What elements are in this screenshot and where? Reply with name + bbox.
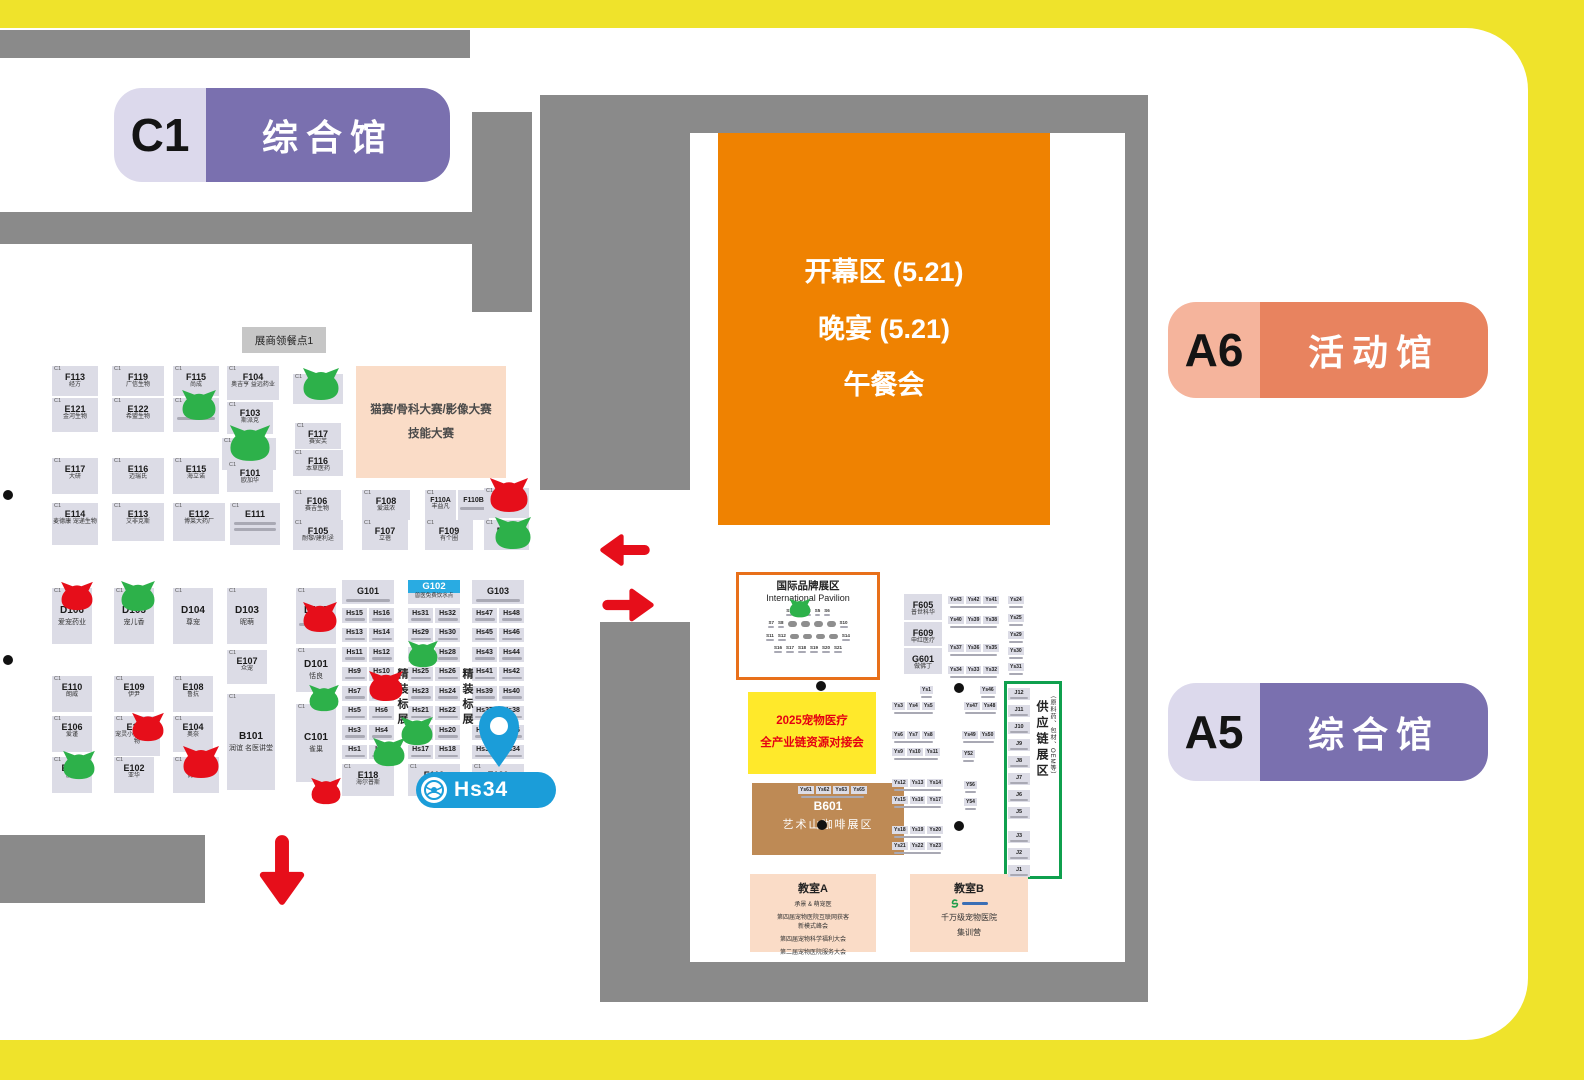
pavilion-row: S7S8S10 [739,620,877,628]
booth-Ys16: Ys16 [910,796,926,804]
hs-pair: Hs43Hs44 [472,647,524,662]
matchbox-line-2: 全产业链资源对接会 [748,733,876,755]
booth-J10: J10 [1008,722,1030,734]
contest-line-1: 猫赛/骨科大赛/影像大赛 [356,398,506,422]
illegible-text [1010,799,1029,801]
booth-S17: S17 [786,645,794,653]
booth-Y56: Y56 [964,781,977,789]
ys-booth-group: Ys43Ys42Ys41 [948,596,999,608]
green-cat-icon [492,516,534,550]
booth-Hs9: Hs9 [342,667,367,682]
illegible-text [1010,714,1029,716]
illegible-text [475,696,495,699]
booth-name: 尊宠 [173,619,213,626]
booth-name: 昵萌 [227,619,267,626]
booth-name: 雀巢 [296,746,336,753]
illegible-text [502,677,522,680]
illegible-text [766,639,774,641]
ys-booth-group: Ys46 [980,686,996,698]
booth-J6: J6 [1008,790,1030,802]
booth-Ys3: Ys3 [892,702,905,710]
booth-Ys63: Ys63 [833,786,849,794]
marker-booth-label: Hs34 [454,778,508,802]
hall-tag: C1 [427,491,434,497]
booth-F605: F605普世科华 [904,594,942,620]
illegible-text [1010,697,1029,699]
hall-tag: C1 [54,399,61,405]
illegible-text [778,626,784,628]
classroom-b-title: 教室B [910,880,1028,896]
booth-name: 广信生物 [112,382,164,388]
classroom-b-line: 集训营 [910,927,1028,938]
hall-tag: C1 [297,424,304,430]
booth-C101: C1C101雀巢 [296,704,336,782]
booth-S8: S8 [778,620,784,628]
booth-code: B101 [227,732,275,743]
map-dot [816,681,826,691]
hs-pair: Hs15Hs16 [342,608,394,623]
booth-Ys29: Ys29 [1008,631,1024,639]
ys-booth-group: Ys21Ys22Ys23 [892,842,943,854]
left-arrow-icon [598,528,652,572]
booth-Ys31: Ys31 [1008,663,1024,671]
classroom-b-logo [910,899,1028,908]
booth-E116: C1E116迈瑞氏 [112,458,164,494]
illegible-text [1010,857,1029,859]
supply-chain-subtitle: （原料药、包材、OEM等） [1048,692,1057,877]
ys-row: Ys37Ys36Ys35 [948,644,999,652]
classroom-a-line: 第四届宠物医院互联网获客 [750,912,876,921]
classroom-a-title: 教室A [750,880,876,896]
wall-hall-right [1125,133,1148,1002]
hall-code-a5: A5 [1168,683,1260,781]
booth-S19: S19 [810,645,818,653]
illegible-text [965,712,996,714]
illegible-text [894,806,941,808]
classroom-b-schedule: 千万级宠物医院集训营 [910,912,1028,938]
ys-booth-group: Ys31 [1008,663,1024,675]
booth-J8: J8 [1008,756,1030,768]
illegible-text [345,696,365,699]
booth-Ys18: Ys18 [892,826,908,834]
illegible-text [824,614,830,616]
booth-name: 迈瑞氏 [112,474,164,480]
red-cat-icon [180,745,222,779]
hall-tag: C1 [229,651,236,657]
booth-J1: J1 [1008,865,1030,877]
pavilion-row: S16S17S18S19S20S21 [739,645,877,653]
booth-code: Hs42 [499,668,524,675]
green-cat-icon [306,684,342,712]
hall-tag: C1 [54,367,61,373]
booth-code: Hs13 [342,629,367,636]
map-dot [3,655,13,665]
booth-E113: C1E113艾非克斯 [112,503,164,541]
illegible-text [950,606,997,608]
matchbox-line-1: 2025宠物医疗 [748,711,876,733]
hs-pair: Hs31Hs32 [408,608,460,623]
booth-code: D101 [296,660,336,671]
booth-name: 耐黎/建利迳 [293,536,343,542]
hall-pill-a5: A5 综合馆 [1168,683,1488,781]
booth-Ys10: Ys10 [907,748,923,756]
booth-name: 众宠 [227,666,267,672]
booth-name: 大研 [52,474,98,480]
booth-code: Hs11 [342,649,367,656]
ys-row: Ys18Ys19Ys20 [892,826,943,834]
booth-Hs23: Hs23 [408,686,433,701]
booth-E102: C1E102亚华 [114,757,154,793]
booth-Hs3: Hs3 [342,725,367,740]
red-cat-icon [366,670,406,702]
ys-booth-group: Ys29 [1008,631,1024,643]
booth-Hs14: Hs14 [369,628,394,643]
booth-Hs46: Hs46 [499,628,524,643]
booth-code: Hs12 [369,649,394,656]
booth-S10: S10 [840,620,848,628]
booth-code: Hs48 [499,610,524,617]
wall-corridor-lower [600,622,690,1002]
hall-label-a5: 综合馆 [1260,683,1488,781]
premium-booth-zone-label: 精装标展 [459,668,475,754]
hall-tag: C1 [175,504,182,510]
oval-booth-marker [801,621,810,627]
booth-Hs12: Hs12 [369,647,394,662]
booth-Hs22: Hs22 [435,706,460,721]
booth-code: Hs9 [342,668,367,675]
booth-E106: C1E106爱谨 [52,716,92,752]
illegible-text [372,716,392,719]
booth-Ys65: Ys65 [851,786,867,794]
booth-F119: C1F119广信生物 [112,366,164,396]
sponsor-logo-text-illegible [962,902,988,905]
hall-tag: C1 [298,705,305,711]
oval-booth-marker [788,621,797,627]
ys-booth-group: Ys37Ys36Ys35 [948,644,999,656]
ys-booth-group: Ys61Ys62Ys63Ys65 [798,786,867,798]
booth-name: 有个圈 [425,536,473,542]
booth-code: G101 [342,587,394,596]
illegible-text [372,618,392,621]
booth-Ys34: Ys34 [948,666,964,674]
illegible-text [950,654,997,656]
hall-tag: C1 [229,589,236,595]
illegible-text [345,657,365,660]
booth-name: 宠儿香 [114,619,154,626]
oval-booth-marker [829,634,838,640]
ys-row: Y54 [964,798,977,806]
hall-label-c1: 综合馆 [206,88,450,182]
booth-S12: S12 [778,633,786,641]
booth-Hs45: Hs45 [472,628,497,643]
booth-Hs26: Hs26 [435,667,460,682]
booth-code: Hs1 [342,746,367,753]
illegible-text [981,696,995,698]
booth-Hs16: Hs16 [369,608,394,623]
wall-hall-bottom [690,962,1148,1002]
illegible-text [502,696,522,699]
red-cat-icon [58,581,96,611]
booth-Hs11: Hs11 [342,647,367,662]
booth-S20: S20 [822,645,830,653]
illegible-text [774,651,782,653]
illegible-text [921,696,933,698]
illegible-text [1009,657,1023,659]
booth-J3: J3 [1008,831,1030,843]
hall-tag: C1 [229,367,236,373]
booth-name: 鲁抗 [173,692,213,698]
oval-booth-marker [803,634,812,640]
booth-name: 朗威 [52,692,92,698]
booth-Hs47: Hs47 [472,608,497,623]
illegible-text [345,618,365,621]
booth-name: 丰益凡 [425,504,456,510]
hs-pair: Hs45Hs46 [472,628,524,643]
illegible-text [815,614,821,616]
illegible-text [965,791,977,793]
booth-Ys40: Ys40 [948,616,964,624]
booth-J12: J12 [1008,688,1030,700]
ys-row: Ys30 [1008,647,1024,655]
booth-name: 兽医免费饮水点 [408,594,460,600]
booth-Hs40: Hs40 [499,686,524,701]
booth-name: 博莱大药厂 [173,519,225,525]
illegible-text [1009,641,1023,643]
classroom-a-line: 第二届宠物医院服务大会 [750,947,876,956]
booth-Ys35: Ys35 [983,644,999,652]
ys-row: Ys40Ys39Ys38 [948,616,999,624]
ys-booth-group: Ys18Ys19Ys20 [892,826,943,838]
booth-F107: C1F107立蓓 [362,520,408,550]
illegible-text [345,716,365,719]
ys-row: Y52 [962,750,975,758]
booth-F609: F609申红医疗 [904,622,942,646]
hall-tag: C1 [229,403,236,409]
booth-Ys62: Ys62 [816,786,832,794]
booth-J9: J9 [1008,739,1030,751]
international-pavilion-box: 国际品牌展区 International Pavilion S1S2S3S5S6… [736,572,880,680]
ys-booth-group: Ys1 [920,686,933,698]
illegible-text [965,808,977,810]
booth-code: Hs22 [435,707,460,714]
sponsor-logo-icon [950,899,959,908]
illegible-text [1009,624,1023,626]
booth-Ys17: Ys17 [927,796,943,804]
wall-c1-right-slab [472,112,532,312]
pavilion-row: S11S12S14 [739,633,877,641]
hs-pair: Hs25Hs26 [408,667,460,682]
globe-logo-icon [421,777,447,803]
booth-Ys39: Ys39 [966,616,982,624]
ys-row: Ys15Ys16Ys17 [892,796,943,804]
booth-F113: C1F113经方 [52,366,98,396]
wall-hall-top [690,95,1148,133]
booth-F108: C1F108爱滋浓 [362,490,410,520]
booth-Ys4: Ys4 [907,702,920,710]
illegible-text [801,796,864,798]
illegible-text [894,789,941,791]
green-cat-icon [405,640,441,668]
booth-E112: C1E112博莱大药厂 [173,503,225,541]
booth-name: 艾非克斯 [112,519,164,525]
booth-F105: C1F105耐黎/建利迳 [293,520,343,550]
booth-code: Hs3 [342,727,367,734]
illegible-text [438,735,458,738]
booth-F117: C1F117赛安芙 [295,423,341,449]
booth-Ys43: Ys43 [948,596,964,604]
illegible-text [894,712,933,714]
illegible-text [842,639,850,641]
illegible-text [1010,874,1029,876]
oval-booth-marker [827,621,836,627]
booth-code: Hs26 [435,668,460,675]
booth-code: Hs14 [369,629,394,636]
hall-tag: C1 [116,758,123,764]
booth-Hs6: Hs6 [369,706,394,721]
booth-Y54: Y54 [964,798,977,806]
hall-tag: C1 [364,521,371,527]
ys-booth-group: Ys49Ys50 [962,731,995,743]
booth-F116: C1F116本草医药 [293,450,343,476]
green-cat-icon [60,750,98,780]
booth-code: Hs43 [472,649,497,656]
booth-Ys12: Ys12 [892,779,908,787]
hall-tag: C1 [54,504,61,510]
ys-row: Y56 [964,781,977,789]
booth-Ys7: Ys7 [907,731,920,739]
map-dot [817,820,827,830]
illegible-text [438,755,458,758]
hall-code-c1: C1 [114,88,206,182]
red-cat-icon [487,477,531,513]
booth-Ys20: Ys20 [927,826,943,834]
booth-code: Hs18 [435,746,460,753]
booth-code: Hs47 [472,610,497,617]
booth-Hs39: Hs39 [472,686,497,701]
booth-Ys14: Ys14 [927,779,943,787]
booth-Ys5: Ys5 [922,702,935,710]
booth-code: Hs23 [408,688,433,695]
ys-row: Ys25 [1008,614,1024,622]
hall-code-a6: A6 [1168,302,1260,398]
booth-B101: C1B101润谊 名医讲堂 [227,694,275,790]
booth-name: 希盟生物 [112,414,164,420]
illegible-text [502,638,522,641]
hall-tag: C1 [295,521,302,527]
ys-row: Ys47Ys48 [964,702,997,710]
illegible-text [1010,782,1029,784]
booth-F109: C1F109有个圈 [425,520,473,550]
green-cat-icon [787,598,813,618]
illegible-text [234,522,276,525]
booth-Ys33: Ys33 [966,666,982,674]
booth-code: Hs29 [408,629,433,636]
hall-tag: C1 [54,459,61,465]
booth-code: Hs15 [342,610,367,617]
booth-Ys11: Ys11 [925,748,940,756]
illegible-text [345,735,365,738]
hall-tag: C1 [175,459,182,465]
booth-name: 润谊 名医讲堂 [227,745,275,752]
booth-S5: S5 [815,608,821,616]
booth-Hs48: Hs48 [499,608,524,623]
booth-name: 爱宠药业 [52,619,92,626]
opening-line-1: 开幕区 (5.21) [718,244,1050,301]
right-arrow-icon [600,583,656,627]
booth-code: Hs41 [472,668,497,675]
ys-row: Ys61Ys62Ys63Ys65 [798,786,867,794]
booth-E108: C1E108鲁抗 [173,676,213,712]
illegible-text [345,755,365,758]
hall-tag: C1 [114,459,121,465]
booth-Ys30: Ys30 [1008,647,1024,655]
hall-tag: C1 [114,504,121,510]
booth-E118: C1E118海尔普斯 [342,764,394,796]
booth-Ys25: Ys25 [1008,614,1024,622]
contest-line-2: 技能大赛 [356,422,506,446]
booth-Ys50: Ys50 [980,731,996,739]
booth-Ys6: Ys6 [892,731,905,739]
booth-D104: C1D104尊宠 [173,588,213,644]
b601-code: B601 [752,799,904,813]
green-cat-icon [179,389,219,421]
marker-banner[interactable]: Hs34 [416,772,556,808]
illegible-text [963,741,994,743]
booth-name: 爱滋浓 [362,506,410,512]
illegible-text [372,657,392,660]
illegible-text [346,599,390,602]
booth-name: 赛吉生物 [293,506,341,512]
hall-tag: C1 [298,649,305,655]
illegible-text [786,651,794,653]
booth-Ys8: Ys8 [922,731,935,739]
oval-booth-marker [790,634,799,640]
booth-code: E111 [230,510,280,519]
ys-booth-group: Ys40Ys39Ys38 [948,616,999,628]
booth-name: 奥奈 [173,732,213,738]
illegible-text [438,716,458,719]
hall-tag: C1 [410,765,417,771]
ys-row: Ys3Ys4Ys5 [892,702,935,710]
booth-E114: C1E114麦德康 宠递生物 [52,503,98,545]
classroom-b-line: 千万级宠物医院 [910,912,1028,923]
booth-code: Hs31 [408,610,433,617]
booth-Hs24: Hs24 [435,686,460,701]
booth-Ys13: Ys13 [910,779,926,787]
illegible-text [840,626,848,628]
location-pin-icon[interactable] [476,704,522,770]
down-arrow-icon [254,832,310,908]
opening-line-2: 晚宴 (5.21) [718,301,1050,358]
booth-Ys9: Ys9 [892,748,905,756]
booth-Ys1: Ys1 [920,686,933,694]
hs-pair: Hs23Hs24 [408,686,460,701]
wall-corridor-upper [540,95,690,490]
hall-tag: C1 [175,677,182,683]
ys-booth-group: Ys9Ys10Ys11 [892,748,940,760]
illegible-text [1010,731,1029,733]
ys-row: Ys31 [1008,663,1024,671]
ys-row: Ys1 [920,686,933,694]
booth-Ys32: Ys32 [983,666,999,674]
booth-Hs15: Hs15 [342,608,367,623]
map-dot [954,821,964,831]
meal-point-label: 展商领餐点1 [242,327,326,353]
hall-tag: C1 [114,399,121,405]
illegible-text [502,657,522,660]
booth-Ys38: Ys38 [983,616,999,624]
classroom-a-line: 承景 & 萌宠医 [750,899,876,908]
